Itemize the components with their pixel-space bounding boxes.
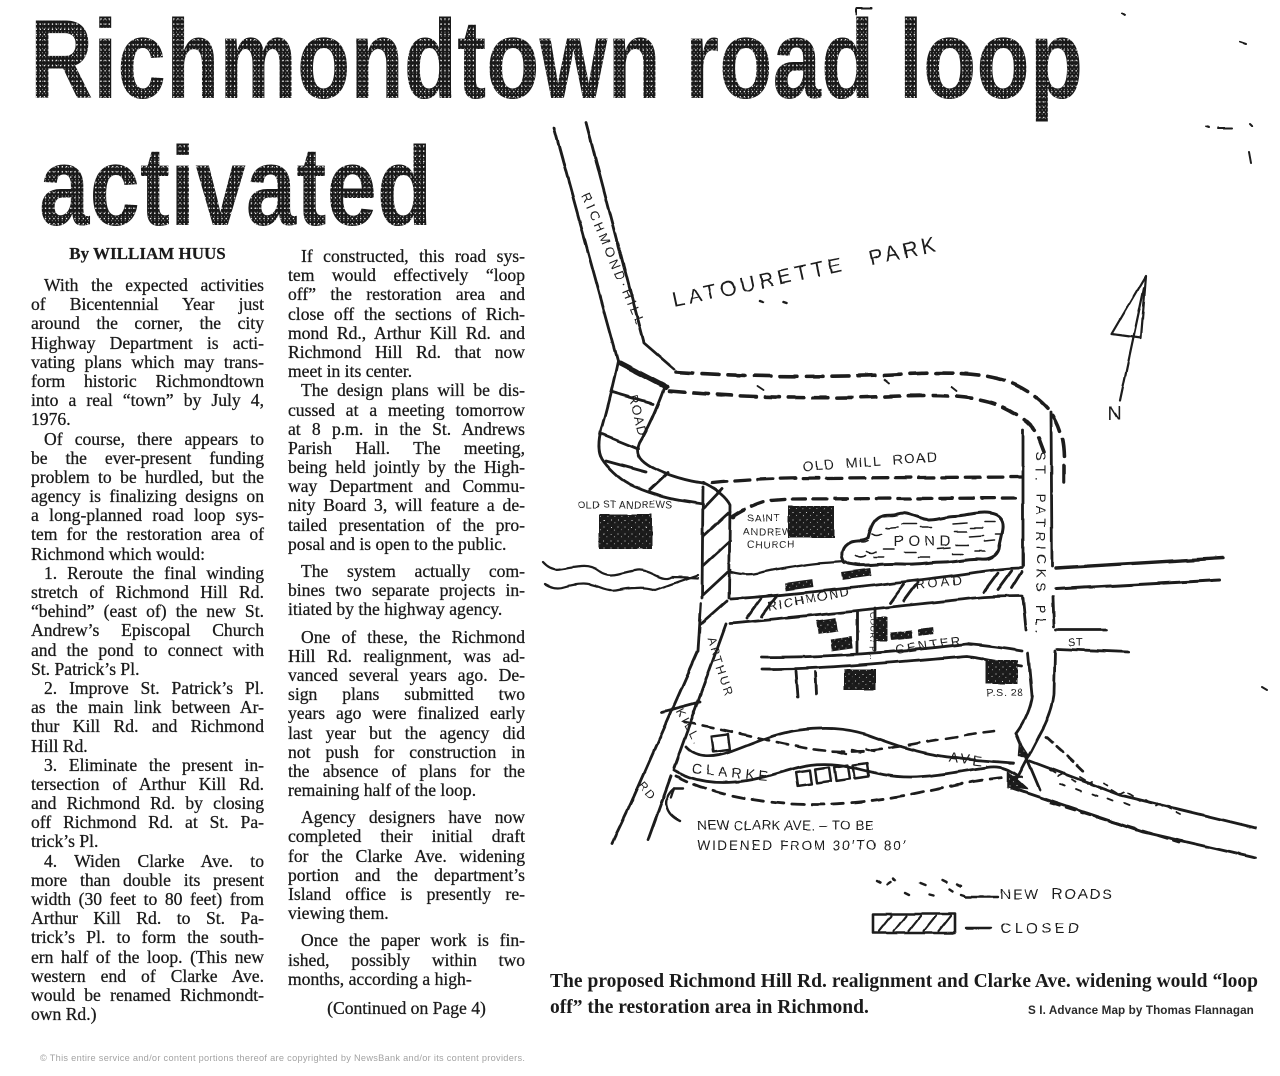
svg-text:SAINT: SAINT bbox=[747, 513, 780, 524]
svg-text:ROAD: ROAD bbox=[915, 572, 966, 592]
svg-text:CHURCH: CHURCH bbox=[747, 540, 795, 551]
svg-text:OLD ST ANDREWS: OLD ST ANDREWS bbox=[578, 500, 673, 511]
svg-text:WIDENED FROM 30′TO 80′: WIDENED FROM 30′TO 80′ bbox=[697, 838, 907, 853]
svg-text:KILL.: KILL. bbox=[673, 706, 704, 748]
svg-text:AVE.: AVE. bbox=[948, 749, 993, 770]
svg-text:NEW CLARK AVE. – TO BE: NEW CLARK AVE. – TO BE bbox=[697, 818, 874, 833]
svg-text:ST. PATRICKS PL.: ST. PATRICKS PL. bbox=[1033, 452, 1048, 638]
svg-text:OLD MILL ROAD: OLD MILL ROAD bbox=[802, 449, 938, 474]
svg-text:NEW ROADS: NEW ROADS bbox=[1000, 886, 1114, 903]
svg-text:CLOSED: CLOSED bbox=[1000, 920, 1083, 937]
svg-text:LATOURETTE PARK: LATOURETTE PARK bbox=[670, 233, 941, 312]
svg-text:P.S. 28: P.S. 28 bbox=[987, 687, 1024, 699]
svg-text:POND: POND bbox=[894, 533, 955, 550]
svg-text:N: N bbox=[1108, 404, 1122, 425]
svg-text:RICHMOND: RICHMOND bbox=[767, 583, 852, 614]
svg-text:ARTHUR: ARTHUR bbox=[704, 635, 736, 699]
svg-text:ST: ST bbox=[1068, 637, 1084, 649]
svg-text:ANDREW: ANDREW bbox=[743, 527, 792, 538]
